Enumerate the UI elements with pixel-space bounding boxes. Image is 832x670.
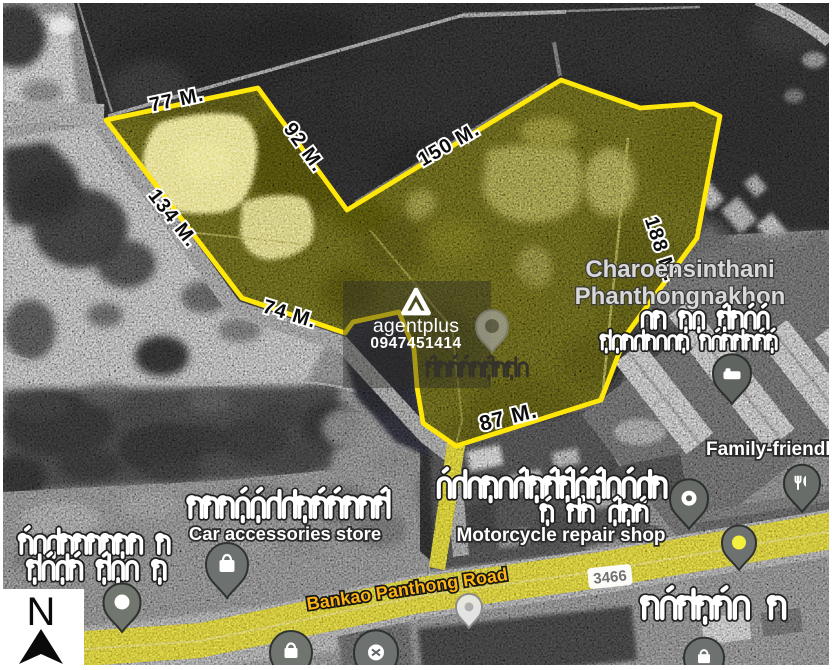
svg-text:Car accessories store: Car accessories store (189, 523, 381, 544)
svg-text:N: N (27, 590, 56, 634)
svg-text:Family-friendl: Family-friendl (706, 439, 831, 460)
svg-text:Motorcycle repair shop: Motorcycle repair shop (456, 525, 665, 546)
svg-text:0947451414: 0947451414 (370, 335, 461, 352)
svg-text:3466: 3466 (593, 567, 628, 587)
svg-text:agentplus: agentplus (373, 315, 459, 337)
svg-text:Charoensinthani: Charoensinthani (585, 256, 774, 283)
